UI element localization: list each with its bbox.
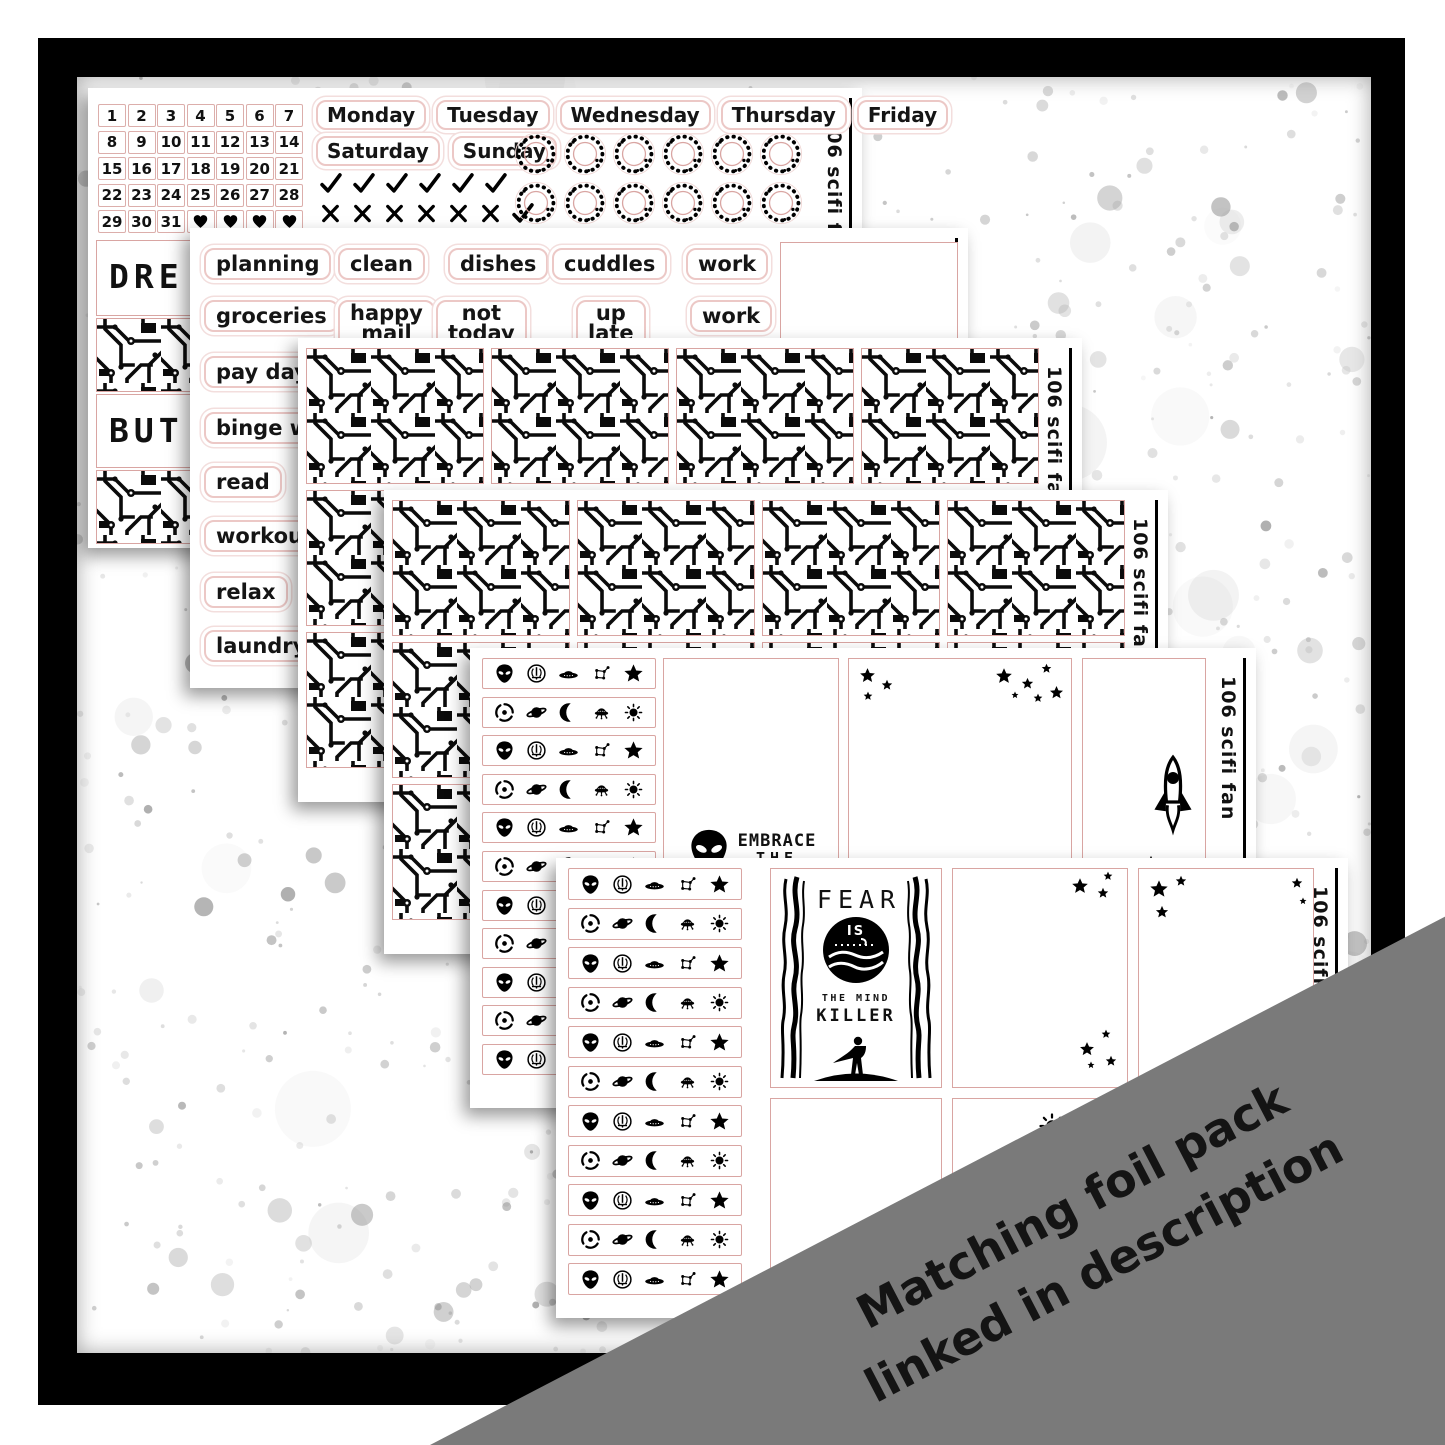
x-mark-icon	[446, 201, 471, 226]
weekday-sticker: Monday	[316, 100, 426, 130]
date-number-sticker: 7	[275, 104, 303, 127]
ufo-icon	[677, 1071, 698, 1092]
dotted-circle-sticker	[563, 181, 607, 225]
checkmark-icon	[351, 170, 377, 196]
moon-icon	[644, 992, 665, 1013]
dotted-circle-sticker	[710, 132, 754, 176]
moon-icon	[644, 913, 665, 934]
alien-icon	[580, 953, 601, 974]
circuit-full-box-sticker	[491, 348, 669, 484]
flying-saucer-icon	[558, 817, 579, 838]
star-icon	[1087, 1061, 1095, 1069]
dotted-circle-sticker	[514, 181, 558, 225]
x-mark-icon	[382, 201, 407, 226]
flying-saucer-icon	[644, 1269, 665, 1290]
flying-saucer-icon	[644, 1111, 665, 1132]
star-icon	[1049, 685, 1064, 700]
date-number-sticker: 4	[187, 104, 215, 127]
alien-icon	[580, 874, 601, 895]
dotted-circle-sticker	[612, 181, 656, 225]
star-icon	[1103, 871, 1113, 881]
checkmark-icon	[384, 170, 410, 196]
checkmark-row	[318, 170, 509, 196]
jedi-order-icon	[612, 953, 633, 974]
date-number-sticker: 31	[157, 210, 185, 233]
alien-icon	[494, 1049, 515, 1070]
dotted-circle-sticker	[612, 132, 656, 176]
x-mark-icon	[414, 201, 439, 226]
circuit-pattern	[677, 349, 853, 483]
space-icon-row-sticker	[568, 1224, 742, 1256]
star-icon	[709, 874, 730, 895]
galaxy-spiral-icon	[494, 856, 515, 877]
word-sticker: work	[690, 300, 772, 332]
date-number-sticker: 10	[157, 131, 185, 154]
galaxy-spiral-icon	[494, 779, 515, 800]
circuit-pattern	[307, 349, 483, 483]
star-icon	[709, 1111, 730, 1132]
circuit-full-box-sticker	[676, 348, 854, 484]
star-icon	[1041, 663, 1052, 674]
date-number-sticker: 19	[216, 157, 244, 180]
word-sticker: clean	[338, 248, 425, 280]
space-icon-row-sticker	[568, 868, 742, 900]
alien-icon	[494, 895, 515, 916]
date-number-sticker: 15	[98, 157, 126, 180]
date-number-sticker: 17	[157, 157, 185, 180]
jedi-order-icon	[526, 895, 547, 916]
word-sticker: read	[204, 466, 282, 498]
dotted-circle-sticker	[759, 181, 803, 225]
star-icon	[623, 817, 644, 838]
date-number-sticker: 3	[157, 104, 185, 127]
saturn-icon	[526, 856, 547, 877]
dotted-circle-sticker	[759, 132, 803, 176]
space-icon-row-sticker	[568, 1105, 742, 1137]
circuit-pattern	[492, 349, 668, 483]
circuit-full-box-sticker	[306, 348, 484, 484]
star-icon	[1101, 1029, 1111, 1039]
date-number-sticker: 23	[128, 184, 156, 207]
galaxy-spiral-icon	[494, 702, 515, 723]
star-icon	[1155, 905, 1169, 919]
constellation-icon	[677, 953, 698, 974]
dot-circle-grid	[514, 132, 811, 225]
flying-saucer-icon	[644, 953, 665, 974]
ufo-icon	[677, 913, 698, 934]
x-mark-icon	[350, 201, 375, 226]
star-icon	[1011, 691, 1019, 699]
date-number-sticker: 2	[128, 104, 156, 127]
constellation-icon	[677, 1269, 698, 1290]
star-icon	[1105, 1055, 1117, 1067]
star-icon	[1097, 887, 1109, 899]
galaxy-spiral-icon	[580, 1150, 601, 1171]
star-icon	[1299, 897, 1307, 905]
sun-icon	[623, 779, 644, 800]
galaxy-spiral-icon	[580, 1071, 601, 1092]
sheet-code-label: 106 scifi fan	[1217, 676, 1239, 820]
date-number-sticker: 1	[98, 104, 126, 127]
date-number-sticker: 27	[246, 184, 274, 207]
space-icon-row-sticker	[568, 1066, 742, 1098]
sheet-code-label: 106 scifi fan	[1043, 366, 1065, 510]
space-icon-row-sticker	[482, 658, 656, 689]
alien-icon	[580, 1190, 601, 1211]
circuit-full-box-sticker	[762, 500, 940, 636]
circuit-pattern	[393, 501, 569, 635]
date-number-sticker: 29	[98, 210, 126, 233]
circuit-pattern	[763, 501, 939, 635]
star-icon	[859, 667, 876, 684]
constellation-icon	[677, 1032, 698, 1053]
date-number-sticker: 13	[246, 131, 274, 154]
circuit-full-box-sticker	[947, 500, 1125, 636]
date-number-sticker: 11	[187, 131, 215, 154]
moon-icon	[644, 1229, 665, 1250]
space-icon-row-sticker	[482, 697, 656, 728]
x-mark-row	[318, 200, 536, 226]
jedi-order-icon	[526, 1049, 547, 1070]
weekday-row: MondayTuesdayWednesdayThursdayFriday	[316, 100, 948, 130]
constellation-icon	[591, 663, 612, 684]
sun-icon	[709, 1229, 730, 1250]
star-icon	[709, 1190, 730, 1211]
star-icon	[1071, 877, 1089, 895]
weekday-sticker: Thursday	[721, 100, 847, 130]
word-sticker: cuddles	[552, 248, 667, 280]
jedi-order-icon	[526, 817, 547, 838]
ufo-icon	[591, 779, 612, 800]
date-number-sticker: 16	[128, 157, 156, 180]
alien-icon	[494, 972, 515, 993]
circuit-full-box-sticker	[861, 348, 1039, 484]
saturn-icon	[612, 992, 633, 1013]
date-number-sticker: 14	[275, 131, 303, 154]
alien-icon	[494, 740, 515, 761]
star-icon	[1175, 875, 1187, 887]
circuit-pattern	[948, 501, 1124, 635]
sun-icon	[709, 1150, 730, 1171]
alien-icon	[580, 1111, 601, 1132]
word-sticker: dishes	[448, 248, 548, 280]
star-icon	[995, 667, 1013, 685]
star-icon	[709, 953, 730, 974]
galaxy-spiral-icon	[494, 933, 515, 954]
rocket-icon	[1149, 754, 1197, 850]
jedi-order-icon	[526, 663, 547, 684]
saturn-icon	[526, 779, 547, 800]
sheet-code-label: 106 scifi fan	[1129, 518, 1151, 662]
ufo-icon	[591, 702, 612, 723]
alien-icon	[494, 663, 515, 684]
star-icon	[1021, 677, 1034, 690]
flying-saucer-icon	[644, 874, 665, 895]
date-number-sticker: 21	[275, 157, 303, 180]
space-icon-row-sticker	[482, 774, 656, 805]
space-icon-row-sticker	[568, 1184, 742, 1216]
weekday-sticker: Friday	[857, 100, 948, 130]
date-number-sticker: 12	[216, 131, 244, 154]
circuit-full-box-sticker	[392, 500, 570, 636]
space-icon-row-sticker	[568, 1026, 742, 1058]
saturn-icon	[526, 933, 547, 954]
saturn-icon	[612, 913, 633, 934]
star-icon	[1291, 877, 1303, 889]
galaxy-spiral-icon	[580, 1229, 601, 1250]
star-icon	[623, 663, 644, 684]
saturn-icon	[612, 1150, 633, 1171]
product-image: 106 scifi fan 12345678910111213141516171…	[0, 0, 1445, 1445]
word-sticker: planning	[204, 248, 331, 280]
dotted-circle-sticker	[514, 132, 558, 176]
date-number-sticker: 22	[98, 184, 126, 207]
galaxy-spiral-icon	[494, 1010, 515, 1031]
date-number-sticker: 25	[187, 184, 215, 207]
moon-icon	[558, 702, 579, 723]
star-icon	[881, 679, 893, 691]
date-number-sticker: 5	[216, 104, 244, 127]
checkmark-icon	[417, 170, 443, 196]
date-number-sticker: 20	[246, 157, 274, 180]
date-number-sticker: 28	[275, 184, 303, 207]
galaxy-spiral-icon	[580, 992, 601, 1013]
checkmark-icon	[318, 170, 344, 196]
dotted-circle-sticker	[661, 132, 705, 176]
moon-icon	[558, 779, 579, 800]
ufo-icon	[677, 1229, 698, 1250]
ufo-icon	[677, 1150, 698, 1171]
weekday-sticker: Tuesday	[436, 100, 549, 130]
jedi-order-icon	[526, 740, 547, 761]
star-icon	[1149, 879, 1169, 899]
constellation-icon	[591, 817, 612, 838]
flying-saucer-icon	[558, 740, 579, 761]
moon-icon	[644, 1071, 665, 1092]
star-icon	[863, 691, 873, 701]
space-icon-row-sticker	[568, 1263, 742, 1295]
saturn-icon	[612, 1071, 633, 1092]
checkmark-icon	[483, 170, 509, 196]
jedi-order-icon	[612, 1269, 633, 1290]
flying-saucer-icon	[644, 1032, 665, 1053]
sun-icon	[709, 913, 730, 934]
star-icon	[1079, 1041, 1095, 1057]
alien-icon	[580, 1032, 601, 1053]
jedi-order-icon	[612, 1190, 633, 1211]
fear-subtitle-2: KILLER	[771, 1006, 941, 1026]
jedi-order-icon	[526, 972, 547, 993]
dotted-circle-sticker	[563, 132, 607, 176]
word-sticker: groceries	[204, 300, 339, 332]
word-sticker: relax	[204, 576, 288, 608]
date-number-sticker: 18	[187, 157, 215, 180]
date-number-sticker: 24	[157, 184, 185, 207]
ufo-icon	[677, 992, 698, 1013]
alien-icon	[580, 1269, 601, 1290]
alien-icon	[494, 817, 515, 838]
fear-circle-emblem: IS	[823, 917, 889, 983]
constellation-icon	[591, 740, 612, 761]
space-icon-row-sticker	[568, 1145, 742, 1177]
constellation-icon	[677, 1111, 698, 1132]
fear-title: FEAR	[771, 885, 941, 914]
sun-icon	[709, 992, 730, 1013]
space-icon-row-sticker	[568, 947, 742, 979]
x-mark-icon	[318, 201, 343, 226]
jedi-order-icon	[612, 1111, 633, 1132]
star-icon	[623, 740, 644, 761]
star-box-sticker	[952, 868, 1128, 1088]
date-number-sticker: 8	[98, 131, 126, 154]
flying-saucer-icon	[644, 1190, 665, 1211]
circuit-pattern	[862, 349, 1038, 483]
moon-icon	[644, 1150, 665, 1171]
dotted-circle-sticker	[661, 181, 705, 225]
weekend-sticker: Saturday	[316, 136, 440, 166]
galaxy-spiral-icon	[580, 913, 601, 934]
date-number-sticker: 26	[216, 184, 244, 207]
star-icon	[709, 1269, 730, 1290]
date-number-sticker: 6	[246, 104, 274, 127]
date-number-sticker: 30	[128, 210, 156, 233]
space-icon-row-sticker	[568, 908, 742, 940]
saturn-icon	[612, 1229, 633, 1250]
constellation-icon	[677, 1190, 698, 1211]
dune-waves	[823, 917, 889, 983]
saturn-icon	[526, 702, 547, 723]
space-icon-row-sticker	[568, 987, 742, 1019]
star-icon	[1033, 693, 1043, 703]
circuit-pattern	[578, 501, 754, 635]
space-icon-row-sticker	[482, 812, 656, 843]
circuit-full-box-sticker	[577, 500, 755, 636]
x-mark-icon	[478, 201, 503, 226]
saturn-icon	[526, 1010, 547, 1031]
desert-figure-silhouette	[806, 1029, 906, 1081]
word-sticker: work	[686, 248, 768, 280]
fear-subtitle-1: THE MIND	[771, 993, 941, 1004]
space-icon-row-sticker	[482, 735, 656, 766]
fear-box-sticker: FEARISTHE MINDKILLER	[770, 868, 942, 1088]
weekday-sticker: Wednesday	[560, 100, 711, 130]
constellation-icon	[677, 874, 698, 895]
flying-saucer-icon	[558, 663, 579, 684]
sun-icon	[709, 1071, 730, 1092]
star-icon	[709, 1032, 730, 1053]
jedi-order-icon	[612, 874, 633, 895]
checkmark-icon	[450, 170, 476, 196]
date-number-sticker: 9	[128, 131, 156, 154]
jedi-order-icon	[612, 1032, 633, 1053]
dotted-circle-sticker	[710, 181, 754, 225]
sun-icon	[623, 702, 644, 723]
